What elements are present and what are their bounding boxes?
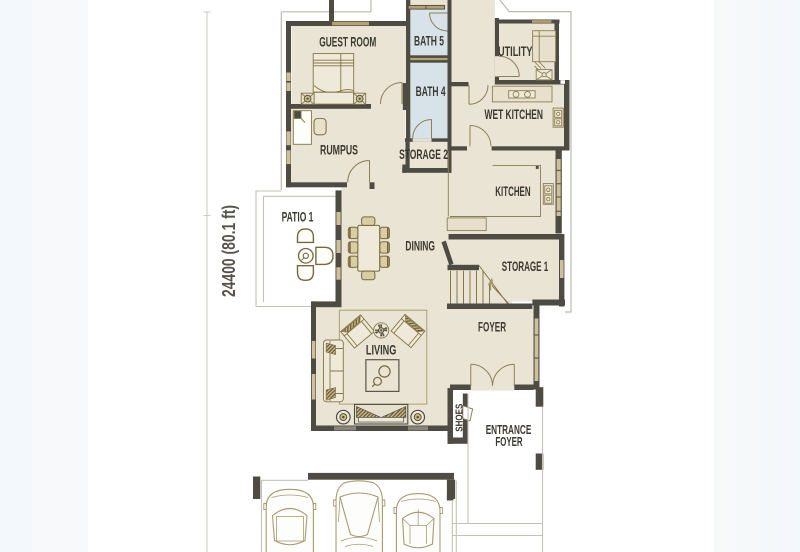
svg-text:RUMPUS: RUMPUS (320, 141, 358, 157)
svg-text:WET KITCHEN: WET KITCHEN (485, 106, 544, 122)
svg-text:FOYER: FOYER (495, 435, 522, 449)
svg-text:FOYER: FOYER (478, 319, 506, 335)
svg-text:STORAGE 2: STORAGE 2 (399, 146, 448, 162)
svg-text:24400 (80.1 ft): 24400 (80.1 ft) (219, 205, 239, 297)
svg-text:PATIO 1: PATIO 1 (282, 208, 314, 224)
svg-text:GUEST ROOM: GUEST ROOM (319, 34, 376, 50)
svg-text:UTILITY: UTILITY (498, 43, 533, 59)
svg-text:SHOES: SHOES (454, 404, 466, 432)
svg-text:KITCHEN: KITCHEN (495, 183, 530, 199)
svg-text:BATH 5: BATH 5 (414, 32, 444, 48)
svg-text:STORAGE 1: STORAGE 1 (502, 258, 549, 274)
svg-text:DINING: DINING (405, 237, 435, 253)
svg-text:LIVING: LIVING (366, 342, 397, 358)
svg-text:BATH 4: BATH 4 (416, 83, 446, 99)
